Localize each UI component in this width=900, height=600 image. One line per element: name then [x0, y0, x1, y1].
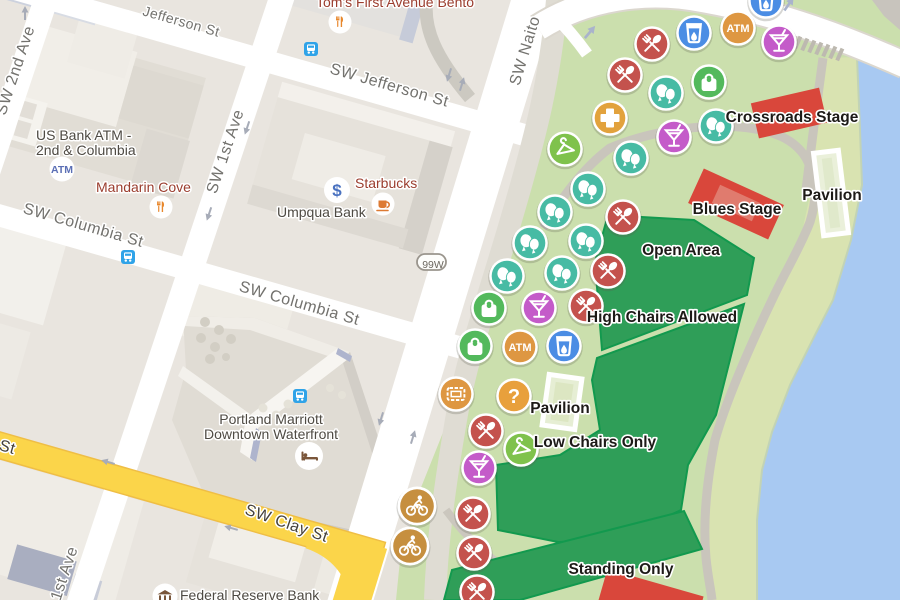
svg-text:US Bank ATM -: US Bank ATM -	[36, 127, 132, 143]
svg-text:2nd & Columbia: 2nd & Columbia	[36, 142, 136, 158]
svg-text:Low Chairs Only: Low Chairs Only	[534, 434, 657, 451]
svg-text:Blues Stage: Blues Stage	[693, 201, 782, 218]
svg-text:High Chairs Allowed: High Chairs Allowed	[587, 309, 737, 326]
svg-text:Mandarin Cove: Mandarin Cove	[96, 179, 191, 195]
svg-text:ATM: ATM	[51, 164, 73, 176]
svg-text:$: $	[332, 181, 342, 200]
svg-text:Standing Only: Standing Only	[568, 561, 673, 578]
svg-text:Starbucks: Starbucks	[355, 175, 417, 191]
svg-text:Umpqua Bank: Umpqua Bank	[277, 204, 367, 220]
svg-text:Downtown Waterfront: Downtown Waterfront	[204, 426, 338, 442]
svg-text:Portland Marriott: Portland Marriott	[219, 411, 323, 427]
svg-text:Tom's First Avenue Bento: Tom's First Avenue Bento	[316, 0, 474, 10]
svg-text:Pavilion: Pavilion	[802, 187, 861, 204]
svg-text:Crossroads Stage: Crossroads Stage	[726, 109, 859, 126]
svg-text:Pavilion: Pavilion	[530, 400, 589, 417]
svg-text:Open Area: Open Area	[642, 242, 720, 259]
svg-text:99W: 99W	[422, 259, 444, 271]
svg-text:Federal Reserve Bank: Federal Reserve Bank	[180, 587, 320, 600]
